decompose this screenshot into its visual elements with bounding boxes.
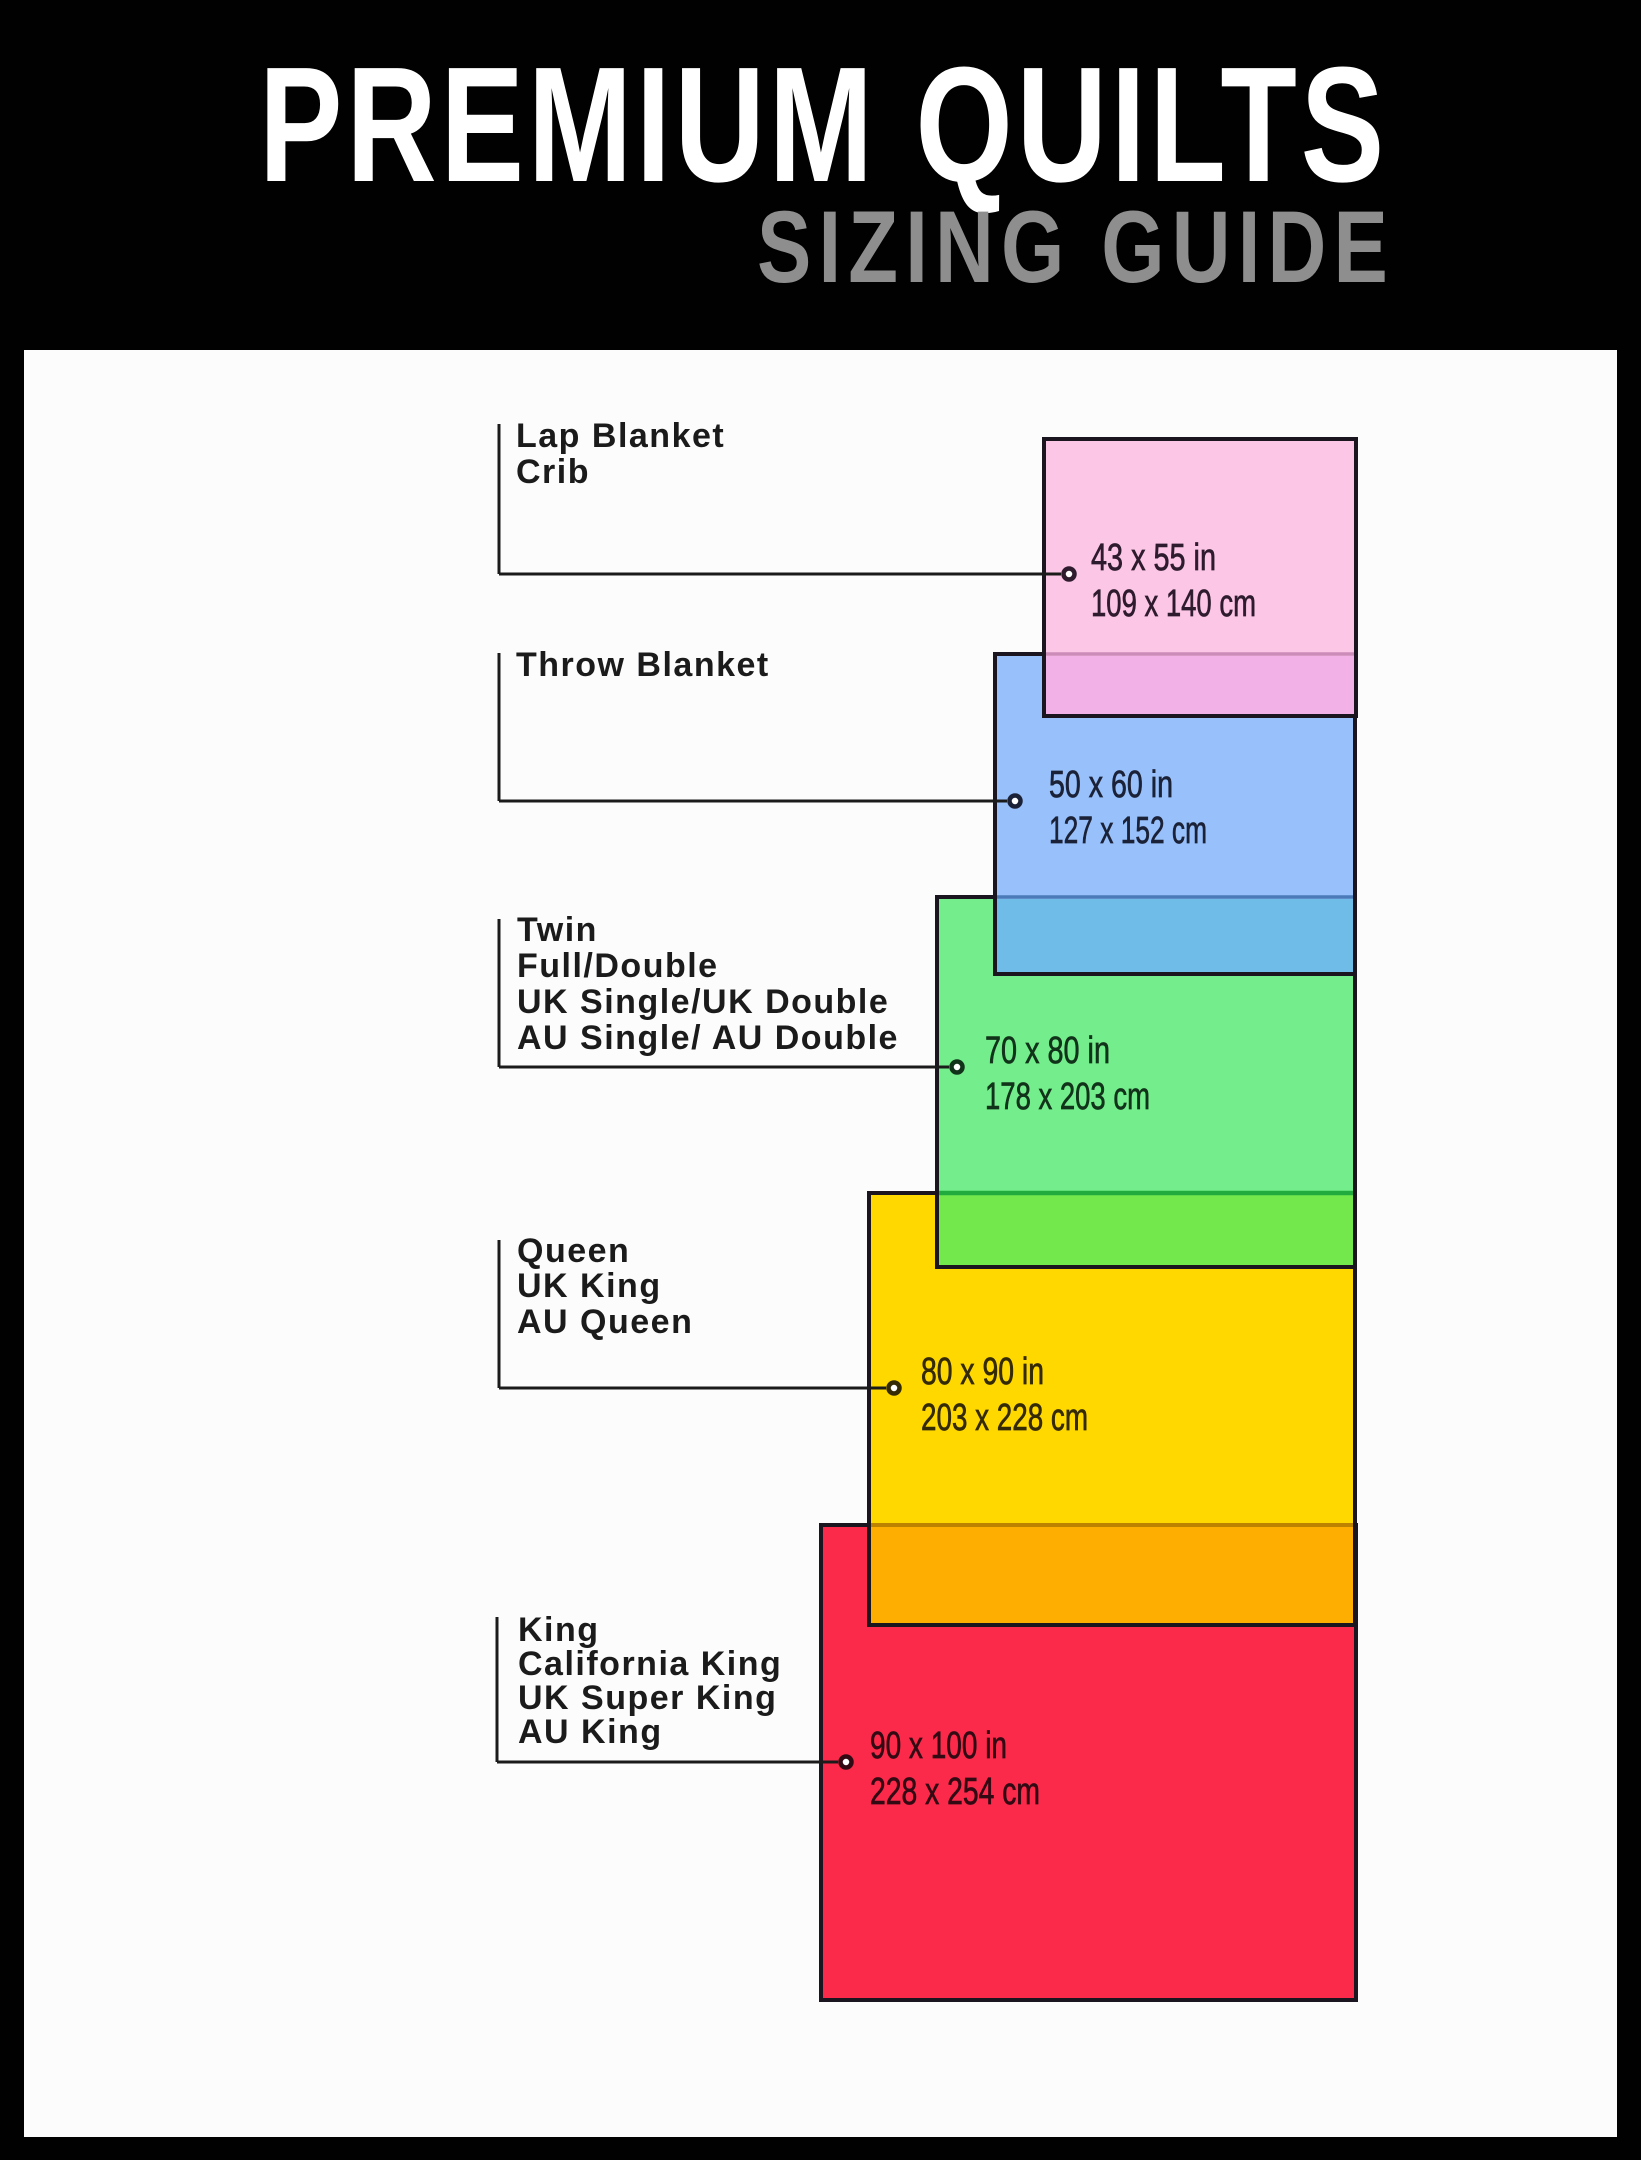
svg-text:80 x 90 in: 80 x 90 in <box>921 1351 1044 1393</box>
svg-text:109 x 140 cm: 109 x 140 cm <box>1091 583 1256 625</box>
svg-text:AU King: AU King <box>518 1713 663 1751</box>
svg-text:UK Super King: UK Super King <box>518 1679 777 1717</box>
svg-text:AU Single/ AU Double: AU Single/ AU Double <box>517 1019 899 1057</box>
svg-text:228 x 254 cm: 228 x 254 cm <box>870 1771 1040 1813</box>
svg-text:PREMIUM QUILTS: PREMIUM QUILTS <box>259 33 1388 216</box>
svg-text:43 x 55 in: 43 x 55 in <box>1091 537 1216 579</box>
svg-text:50 x 60 in: 50 x 60 in <box>1049 764 1173 806</box>
svg-text:SIZING GUIDE: SIZING GUIDE <box>757 190 1395 304</box>
svg-text:AU Queen: AU Queen <box>517 1303 693 1341</box>
svg-text:California King: California King <box>518 1645 782 1683</box>
svg-text:Crib: Crib <box>516 453 590 491</box>
svg-text:203 x 228 cm: 203 x 228 cm <box>921 1397 1088 1439</box>
svg-text:Lap Blanket: Lap Blanket <box>516 417 725 455</box>
svg-text:King: King <box>518 1611 600 1649</box>
svg-text:70 x 80 in: 70 x 80 in <box>985 1030 1110 1072</box>
svg-text:Throw Blanket: Throw Blanket <box>516 646 770 684</box>
svg-text:UK King: UK King <box>517 1267 662 1305</box>
svg-text:90 x 100 in: 90 x 100 in <box>870 1725 1007 1767</box>
svg-text:Queen: Queen <box>517 1232 630 1270</box>
svg-text:Twin: Twin <box>517 911 598 949</box>
svg-text:Full/Double: Full/Double <box>517 947 719 985</box>
svg-text:UK Single/UK Double: UK Single/UK Double <box>517 983 889 1021</box>
svg-text:178 x 203 cm: 178 x 203 cm <box>985 1076 1150 1118</box>
svg-text:127 x 152 cm: 127 x 152 cm <box>1049 810 1207 852</box>
